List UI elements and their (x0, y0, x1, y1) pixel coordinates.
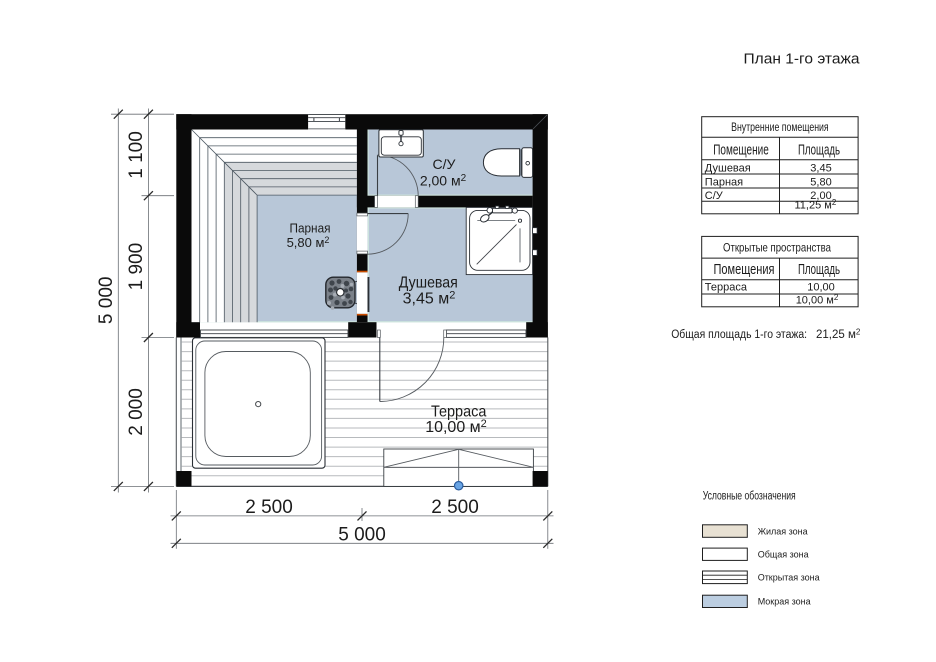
svg-text:2,00 м2: 2,00 м2 (420, 172, 467, 188)
svg-text:5,80: 5,80 (810, 176, 831, 188)
svg-text:С/У: С/У (433, 156, 456, 172)
svg-text:5,80 м2: 5,80 м2 (287, 235, 330, 250)
svg-text:Внутренние помещения: Внутренние помещения (731, 120, 829, 134)
svg-text:Помещения: Помещения (714, 262, 775, 278)
svg-text:3,45: 3,45 (810, 162, 831, 174)
svg-text:Открытая зона: Открытая зона (758, 572, 820, 582)
svg-text:Общая зона: Общая зона (758, 549, 809, 559)
svg-text:3,45 м2: 3,45 м2 (403, 290, 456, 308)
svg-text:2 500: 2 500 (431, 497, 479, 518)
svg-text:11,25 м2: 11,25 м2 (795, 198, 837, 212)
svg-text:Общая площадь 1-го этажа:: Общая площадь 1-го этажа: (671, 329, 807, 341)
svg-text:1 100: 1 100 (126, 131, 147, 179)
svg-text:2 500: 2 500 (245, 497, 293, 518)
svg-text:Условные обозначения: Условные обозначения (703, 491, 796, 503)
svg-text:Площадь: Площадь (798, 262, 840, 278)
svg-text:10,00 м2: 10,00 м2 (796, 293, 839, 307)
svg-text:Парная: Парная (705, 176, 743, 188)
svg-text:Парная: Парная (290, 221, 331, 236)
svg-text:Помещение: Помещение (713, 142, 769, 158)
svg-text:2 000: 2 000 (126, 388, 147, 436)
svg-text:1 900: 1 900 (126, 243, 147, 291)
svg-text:5 000: 5 000 (338, 525, 386, 546)
svg-text:Жилая зона: Жилая зона (758, 526, 808, 536)
svg-text:Терраса: Терраса (705, 282, 748, 294)
svg-text:21,25 м2: 21,25 м2 (816, 328, 861, 342)
svg-text:10,00 м2: 10,00 м2 (425, 418, 487, 436)
svg-text:5 000: 5 000 (96, 277, 117, 325)
svg-text:Душевая: Душевая (705, 162, 751, 174)
svg-text:Площадь: Площадь (798, 142, 840, 158)
svg-text:Открытые пространства: Открытые пространства (723, 241, 831, 255)
svg-text:С/У: С/У (705, 190, 724, 202)
svg-text:10,00: 10,00 (807, 282, 835, 294)
svg-text:Мокрая зона: Мокрая зона (758, 597, 811, 607)
svg-text:План 1-го этажа: План 1-го этажа (744, 51, 861, 67)
